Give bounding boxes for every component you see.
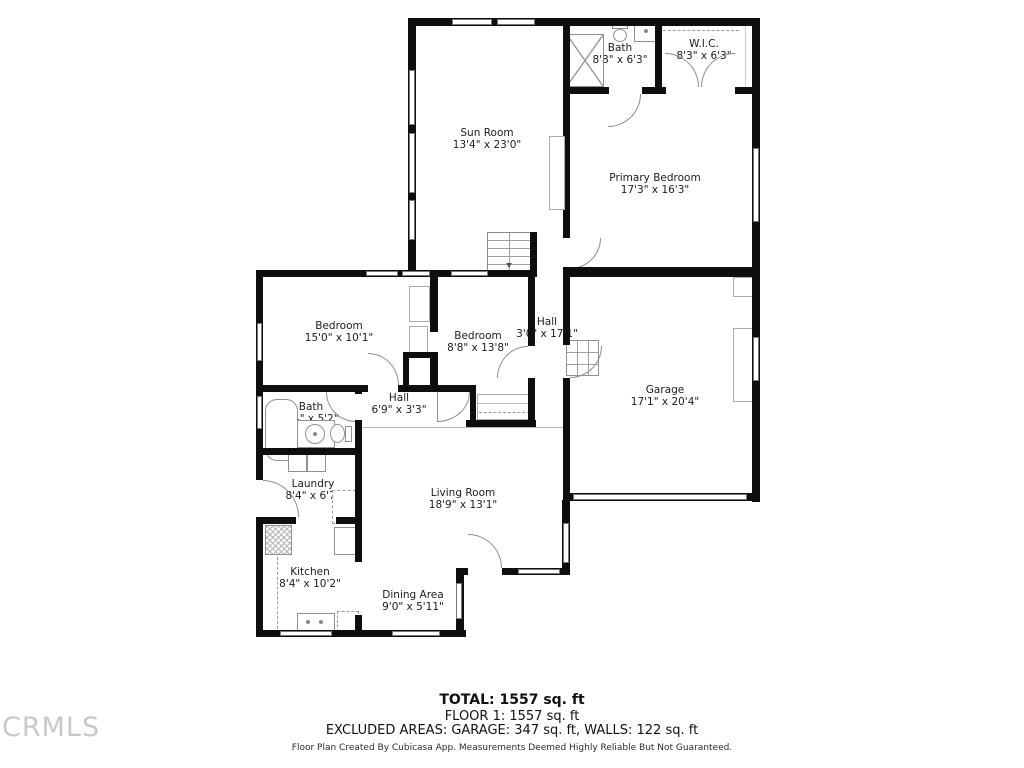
window <box>392 631 440 636</box>
wall <box>256 385 368 392</box>
room-label-bedroom-middle: Bedroom8'8" x 13'8" <box>447 330 509 355</box>
room-label-dining-area: Dining Area9'0" x 5'11" <box>382 589 444 614</box>
door-arc-bedroom-left <box>368 353 399 385</box>
wall <box>256 517 296 524</box>
wall <box>563 378 570 493</box>
wall <box>256 448 362 455</box>
window <box>280 631 332 636</box>
window <box>257 396 262 429</box>
sink-knob-icon <box>319 620 323 624</box>
window <box>452 19 492 25</box>
wall <box>430 352 438 388</box>
room-label-living-room: Living Room18'9" x 13'1" <box>429 487 497 512</box>
wall <box>563 267 760 277</box>
window <box>456 583 462 619</box>
wardrobe <box>409 286 430 322</box>
room-divider-line <box>362 427 563 428</box>
wic-shelf-edge <box>745 24 746 86</box>
sink-knob-icon <box>306 620 310 624</box>
door-arc-primary-bedroom <box>570 238 601 269</box>
door-opening <box>256 480 263 517</box>
window <box>409 200 415 240</box>
wall <box>655 18 662 94</box>
door-leaf <box>437 392 438 422</box>
toilet-bowl-icon <box>330 424 345 443</box>
room-label-kitchen: Kitchen8'4" x 10'2" <box>279 566 341 591</box>
window <box>366 271 398 276</box>
room-label-garage: Garage17'1" x 20'4" <box>631 384 699 409</box>
room-label-hall-small: Hall6'9" x 3'3" <box>371 392 426 417</box>
floor-plan-page: Sun Room13'4" x 23'0" Bath8'8" x 6'3" W.… <box>0 0 1024 768</box>
window <box>402 271 430 276</box>
door-arc-hall <box>437 392 470 422</box>
wic-shelf-dashed <box>663 30 739 31</box>
wall <box>355 385 362 394</box>
window <box>409 70 415 125</box>
low-wall <box>451 271 488 276</box>
disclaimer-text: Floor Plan Created By Cubicasa App. Meas… <box>0 743 1024 753</box>
sink-drain-icon <box>313 432 317 436</box>
chimney <box>549 136 565 210</box>
window <box>409 133 415 193</box>
stove-icon <box>265 525 292 555</box>
wall <box>456 568 468 575</box>
wall <box>398 385 476 392</box>
sink-drain-icon <box>644 29 648 33</box>
window <box>753 337 759 381</box>
wall <box>466 420 536 427</box>
wall <box>355 455 362 562</box>
hall-closet <box>477 394 532 420</box>
crmls-watermark: CRMLS <box>2 712 100 743</box>
wall <box>642 87 666 94</box>
excluded-areas-text: EXCLUDED AREAS: GARAGE: 347 sq. ft, WALL… <box>0 723 1024 738</box>
room-label-bedroom-left: Bedroom15'0" x 10'1" <box>305 320 373 345</box>
total-area-text: TOTAL: 1557 sq. ft <box>0 692 1024 708</box>
garage-door <box>573 494 747 500</box>
wall <box>430 270 438 332</box>
window <box>257 323 262 361</box>
counter-edge-dashed <box>277 557 278 629</box>
door-arc-front-entry <box>468 534 502 568</box>
shower-icon <box>566 34 604 87</box>
window <box>753 148 759 222</box>
garage-steps <box>566 340 599 376</box>
room-label-sun-room: Sun Room13'4" x 23'0" <box>453 127 521 152</box>
toilet-bowl-icon <box>613 29 627 42</box>
wall <box>403 352 409 388</box>
room-label-primary-bedroom: Primary Bedroom17'3" x 16'3" <box>609 172 700 197</box>
door-arc-bath-upper <box>608 94 641 127</box>
wall <box>528 270 535 346</box>
window <box>518 569 560 574</box>
floor-area-text: FLOOR 1: 1557 sq. ft <box>0 709 1024 724</box>
wall <box>563 277 570 345</box>
stairs-down-arrow-icon <box>506 263 512 268</box>
window <box>563 523 569 563</box>
toilet-tank-icon <box>345 426 352 442</box>
window <box>497 19 535 25</box>
wall <box>735 87 760 94</box>
closet-shelf-dashed <box>479 412 530 413</box>
